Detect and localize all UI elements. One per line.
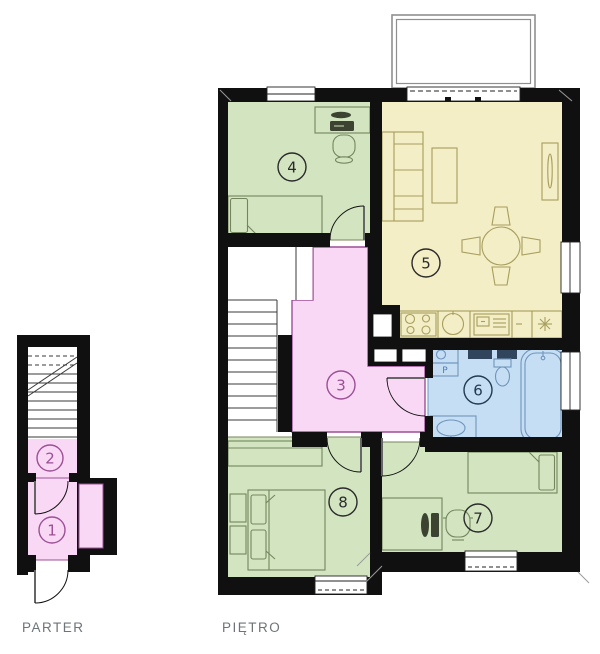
monitor-icon <box>421 513 429 537</box>
balcony <box>392 15 535 88</box>
pietro-label: PIĘTRO <box>222 620 281 635</box>
room-5-number: 5 <box>421 254 431 272</box>
room-1-area <box>23 478 82 560</box>
room-7-number: 7 <box>473 509 483 527</box>
computer-icon <box>431 513 439 537</box>
room-6-number: 6 <box>473 381 483 399</box>
window <box>561 242 580 293</box>
parter-plan: 2 1 <box>17 335 117 603</box>
floorplan-drawing: 3 4 5 6 7 8 P <box>0 0 600 654</box>
room-2-number: 2 <box>45 449 55 467</box>
window <box>561 352 580 410</box>
entrance-door <box>35 570 68 603</box>
entry-bay-area <box>79 484 103 548</box>
room-1-number: 1 <box>47 521 57 539</box>
stairs-parter <box>28 347 77 439</box>
room-8-number: 8 <box>338 493 348 511</box>
floorplan-canvas: 3 4 5 6 7 8 P <box>0 0 600 654</box>
room-7-area <box>375 442 567 557</box>
laptop-icon <box>331 112 351 118</box>
room-4-number: 4 <box>287 158 297 176</box>
washer-label: P <box>442 366 448 376</box>
parter-label: PARTER <box>22 620 85 635</box>
room-3-number: 3 <box>336 376 346 394</box>
room-4-area <box>223 95 375 240</box>
balcony-door <box>407 87 520 101</box>
window <box>315 576 367 594</box>
window <box>465 551 517 571</box>
pietro-plan: 3 4 5 6 7 8 P <box>218 15 589 595</box>
boiler-symbol-icon <box>538 317 552 331</box>
window <box>267 87 315 101</box>
